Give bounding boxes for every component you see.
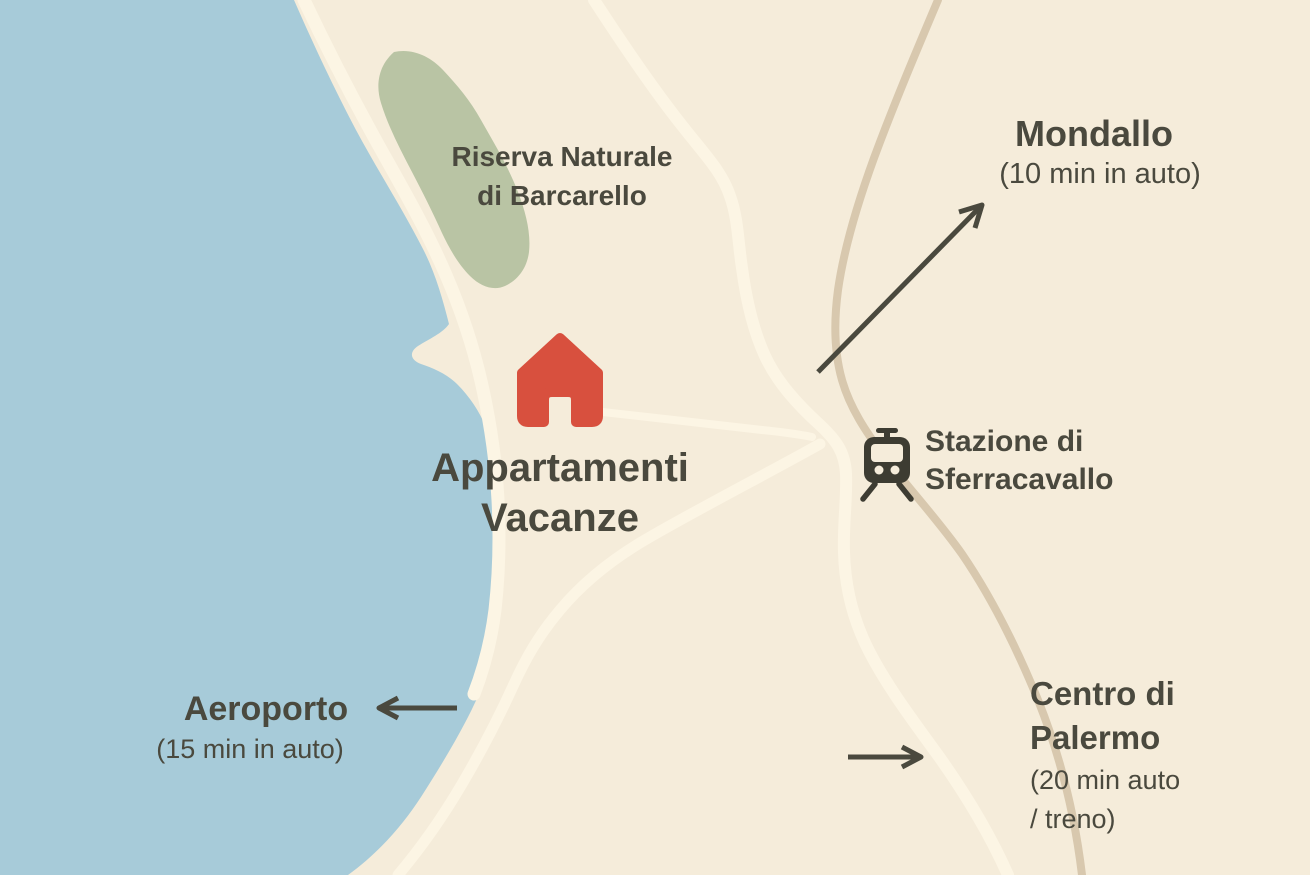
palermo-detail-line1: (20 min auto <box>1030 765 1180 795</box>
reserve-label-line2: di Barcarello <box>477 180 647 211</box>
apartments-label-line2: Vacanze <box>481 496 639 540</box>
reserve-label-line1: Riserva Naturale <box>451 141 672 172</box>
train-light-right <box>891 466 900 475</box>
station-label-line1: Stazione di <box>925 425 1083 458</box>
train-light-left <box>875 466 884 475</box>
palermo-detail-line2: / treno) <box>1030 804 1116 834</box>
mondallo-label: Mondallo <box>1015 113 1173 154</box>
palermo-label-line2: Palermo <box>1030 719 1160 756</box>
map-canvas: Riserva Naturale di Barcarello Appartame… <box>0 0 1310 875</box>
airport-detail: (15 min in auto) <box>156 734 344 764</box>
train-windshield <box>871 444 903 462</box>
apartments-label-line1: Appartamenti <box>431 446 689 490</box>
station-label-line2: Sferracavallo <box>925 463 1113 496</box>
mondallo-detail: (10 min in auto) <box>999 158 1201 190</box>
palermo-label-line1: Centro di <box>1030 675 1175 712</box>
vacation-map: Riserva Naturale di Barcarello Appartame… <box>0 0 1310 875</box>
airport-label: Aeroporto <box>184 690 348 728</box>
